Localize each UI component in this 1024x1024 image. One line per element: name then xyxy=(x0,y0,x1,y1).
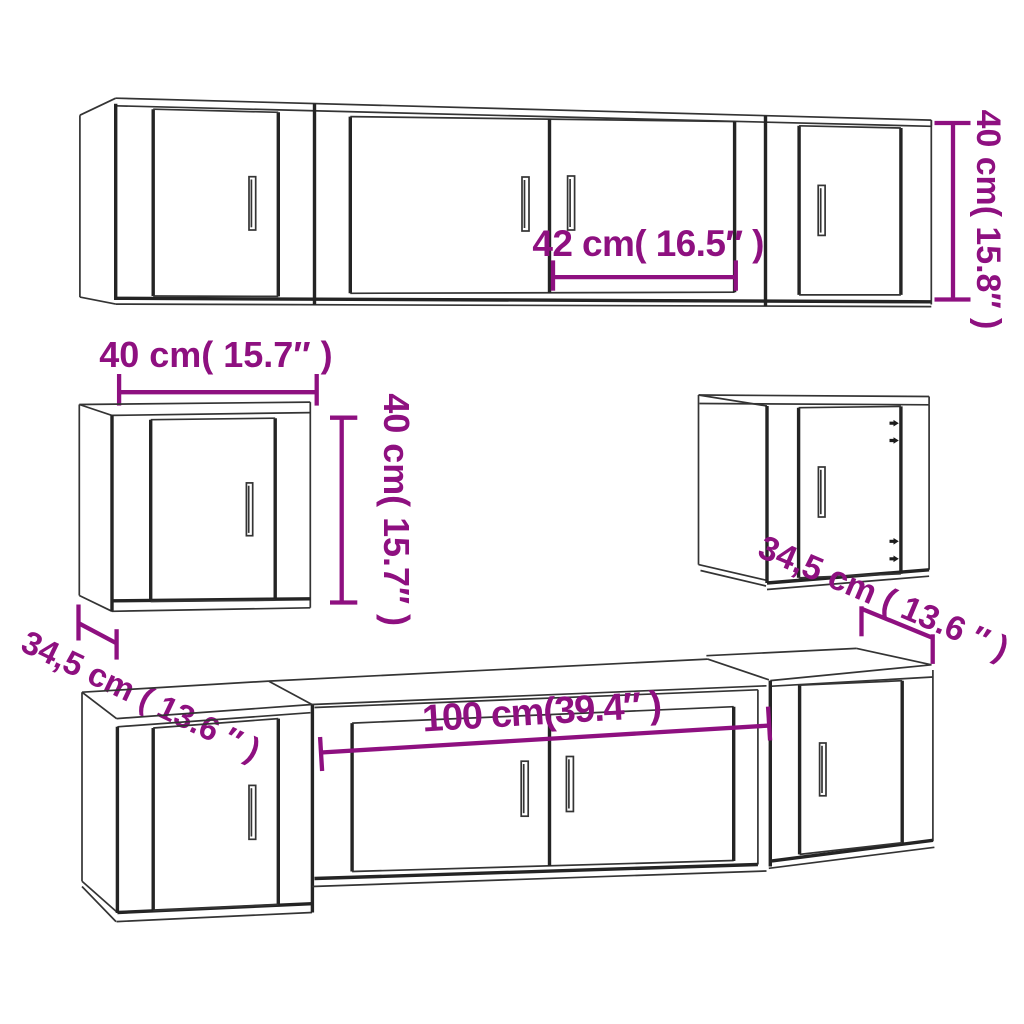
svg-text:40 cm( 15.8″ ): 40 cm( 15.8″ ) xyxy=(969,110,1007,330)
svg-text:40 cm( 15.7″ ): 40 cm( 15.7″ ) xyxy=(99,334,332,375)
svg-text:42 cm( 16.5″ ): 42 cm( 16.5″ ) xyxy=(532,223,763,264)
svg-text:40 cm( 15.7″ ): 40 cm( 15.7″ ) xyxy=(376,393,416,626)
